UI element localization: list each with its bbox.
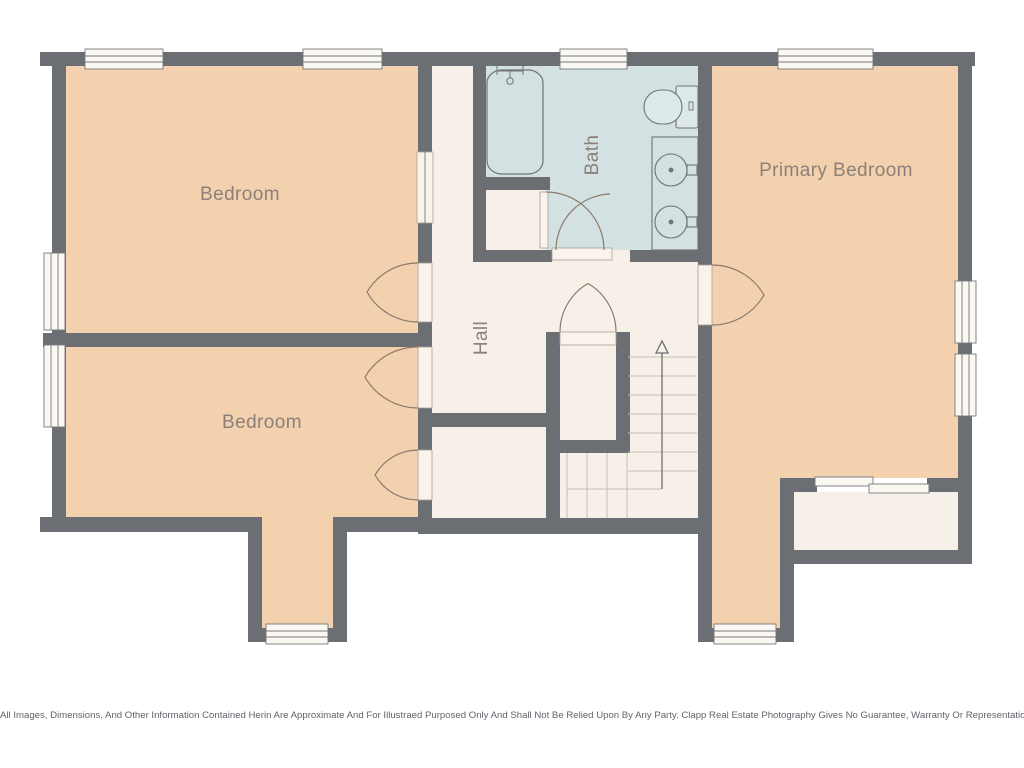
vanity-icon: [652, 137, 698, 250]
floor-plan: Bedroom Bedroom Bath Hall Primary Bedroo…: [0, 0, 1024, 768]
sliding-door-icon: [815, 477, 929, 493]
window-icon: [778, 49, 873, 69]
room-label-primary-bedroom: Primary Bedroom: [759, 160, 913, 181]
room-primary-bedroom: [710, 66, 958, 478]
room-bedroom-bottom-left-alcove: [262, 517, 333, 628]
room-label-hall: Hall: [471, 321, 492, 355]
room-primary-bedroom-alcove: [710, 478, 780, 628]
sliding-door-icon: [417, 152, 433, 223]
bathtub-icon: [487, 70, 543, 174]
window-icon: [303, 49, 382, 69]
floor-plan-page: Bedroom Bedroom Bath Hall Primary Bedroo…: [0, 0, 1024, 768]
window-icon: [560, 49, 627, 69]
room-primary-closet: [794, 492, 958, 550]
window-icon: [85, 49, 163, 69]
window-icon: [955, 354, 976, 416]
room-label-bath: Bath: [582, 135, 603, 176]
window-icon: [44, 345, 65, 427]
disclaimer-text: All Images, Dimensions, And Other Inform…: [0, 710, 1024, 721]
window-icon: [44, 253, 65, 330]
room-bath-closet: [486, 190, 546, 250]
window-icon: [955, 281, 976, 343]
toilet-icon: [644, 86, 698, 128]
room-label-bedroom-bottom-left: Bedroom: [222, 412, 302, 433]
window-icon: [714, 624, 776, 644]
room-label-bedroom-top-left: Bedroom: [200, 184, 280, 205]
window-icon: [266, 624, 328, 644]
